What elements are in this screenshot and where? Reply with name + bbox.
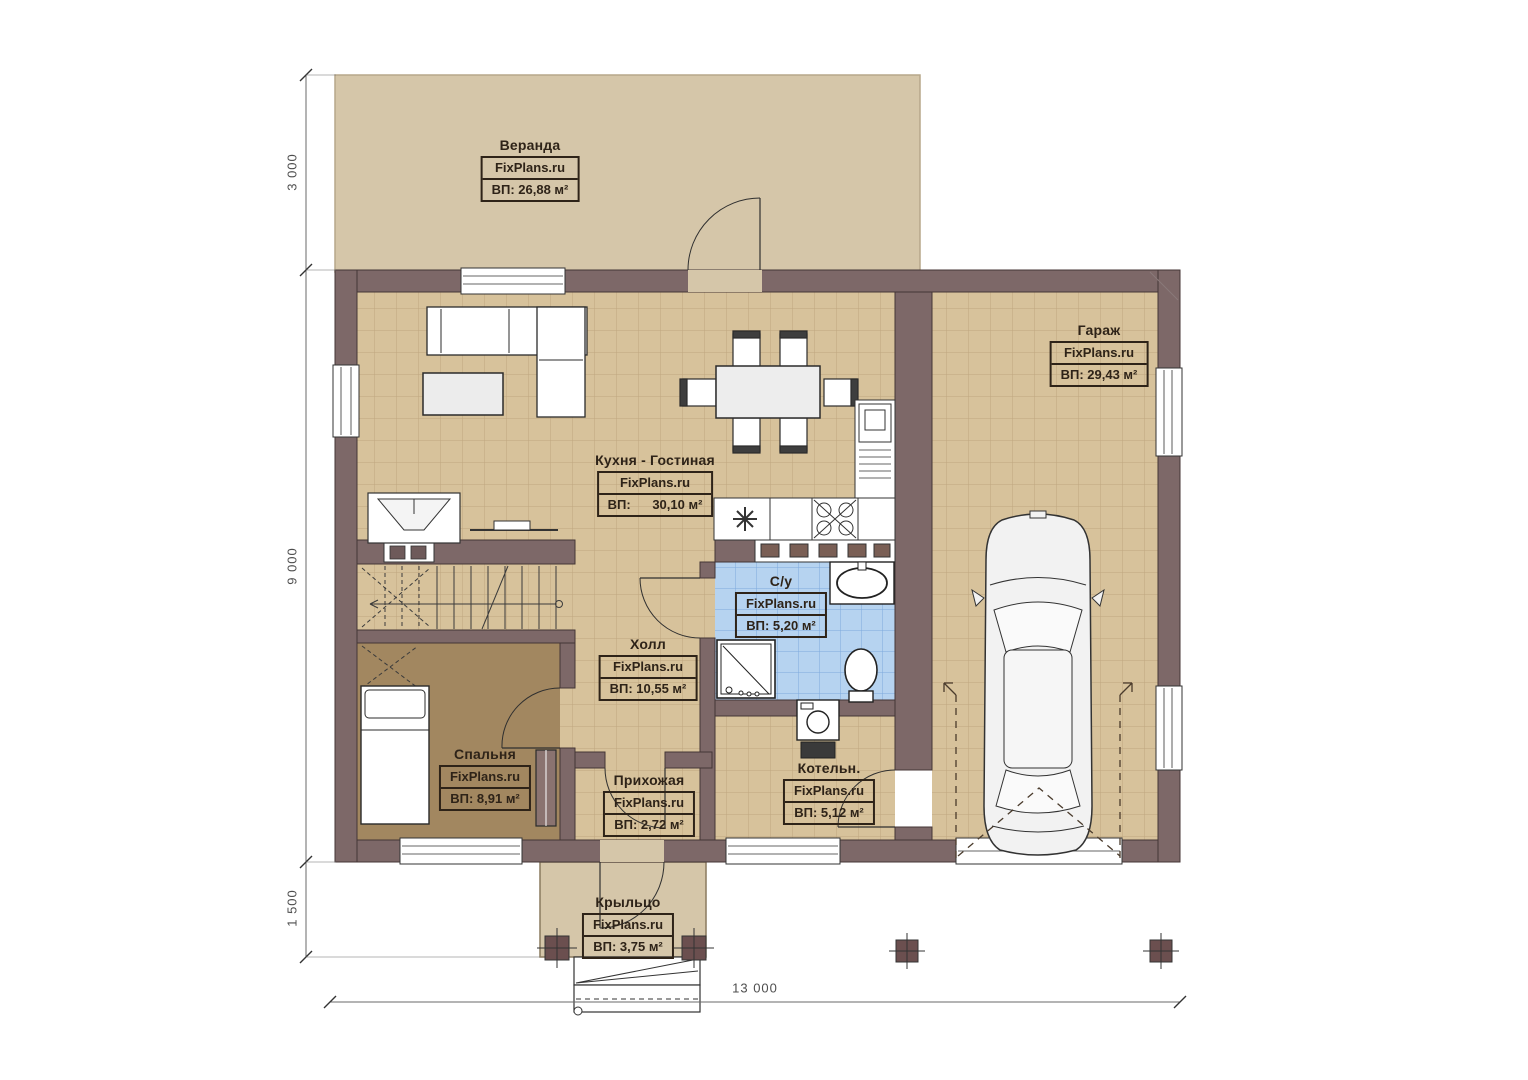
room-name: Гараж (1050, 322, 1149, 338)
brand-label: FixPlans.ru (441, 767, 529, 787)
window-garage-right-bottom (1156, 686, 1182, 770)
entrance-steps (574, 957, 700, 1015)
room-area: ВП: 26,88 м² (483, 178, 578, 200)
room-label-entry: Прихожая FixPlans.ru ВП: 2,72 м² (603, 772, 695, 837)
label-box: FixPlans.ru ВП: 3,75 м² (582, 913, 674, 959)
floor-plan-canvas: Веранда FixPlans.ru ВП: 26,88 м² Гараж F… (0, 0, 1528, 1080)
kitchen-cabinet-row (755, 540, 895, 562)
chimney-flue (384, 542, 434, 562)
label-box: FixPlans.ru ВП: 30,10 м² (597, 471, 714, 517)
label-box: FixPlans.ru ВП: 5,20 м² (735, 592, 827, 638)
yard-post (1143, 933, 1179, 969)
label-box: FixPlans.ru ВП: 29,43 м² (1050, 341, 1149, 387)
room-name: Прихожая (603, 772, 695, 788)
room-label-garage: Гараж FixPlans.ru ВП: 29,43 м² (1050, 322, 1149, 387)
room-name: С/у (735, 573, 827, 589)
veranda-area (335, 75, 920, 272)
room-label-boiler: Котельн. FixPlans.ru ВП: 5,12 м² (783, 760, 875, 825)
boiler-equipment (797, 700, 839, 758)
coffee-table (423, 373, 503, 415)
room-area: ВП: 5,20 м² (737, 614, 825, 636)
sink-basin-icon (830, 562, 894, 604)
brand-label: FixPlans.ru (601, 657, 696, 677)
window-garage-right-top (1156, 368, 1182, 456)
dimension-left-bottom: 1 500 (285, 889, 300, 927)
room-area: ВП: 8,91 м² (441, 787, 529, 809)
room-label-porch: Крыльцо FixPlans.ru ВП: 3,75 м² (582, 894, 674, 959)
window-living-top (461, 268, 565, 294)
brand-label: FixPlans.ru (605, 793, 693, 813)
brand-label: FixPlans.ru (599, 473, 712, 493)
porch-door-opening (600, 840, 664, 862)
room-area: ВП: 3,75 м² (584, 935, 672, 957)
room-area: ВП: 29,43 м² (1052, 363, 1147, 385)
room-area: ВП: 10,55 м² (601, 677, 696, 699)
shower-icon (717, 640, 775, 698)
label-box: FixPlans.ru ВП: 8,91 м² (439, 765, 531, 811)
label-box: FixPlans.ru ВП: 26,88 м² (481, 156, 580, 202)
brand-label: FixPlans.ru (483, 158, 578, 178)
label-box: FixPlans.ru ВП: 5,12 м² (783, 779, 875, 825)
toilet-icon (845, 649, 877, 702)
boiler-unit (801, 742, 835, 758)
room-name: Веранда (481, 137, 580, 153)
dimension-bottom-width: 13 000 (732, 981, 778, 996)
room-name: Крыльцо (582, 894, 674, 910)
brand-label: FixPlans.ru (1052, 343, 1147, 363)
dining-table (716, 366, 820, 418)
room-label-veranda: Веранда FixPlans.ru ВП: 26,88 м² (481, 137, 580, 202)
room-name: Холл (599, 636, 698, 652)
wardrobe (536, 750, 556, 826)
room-name: Кухня - Гостиная (595, 452, 715, 468)
fridge (855, 400, 895, 498)
veranda-door-opening (688, 270, 762, 292)
car (972, 511, 1104, 855)
window-living-left (333, 365, 359, 437)
room-area: ВП: 5,12 м² (785, 801, 873, 823)
fireplace (368, 493, 460, 543)
washing-machine-icon (797, 700, 839, 740)
window-bedroom (400, 838, 522, 864)
floor-plan-drawing (0, 0, 1528, 1080)
room-label-hall: Холл FixPlans.ru ВП: 10,55 м² (599, 636, 698, 701)
window-boiler (726, 838, 840, 864)
room-name: Котельн. (783, 760, 875, 776)
room-label-bedroom: Спальня FixPlans.ru ВП: 8,91 м² (439, 746, 531, 811)
brand-label: FixPlans.ru (785, 781, 873, 801)
label-box: FixPlans.ru ВП: 2,72 м² (603, 791, 695, 837)
room-name: Спальня (439, 746, 531, 762)
brand-label: FixPlans.ru (584, 915, 672, 935)
label-box: FixPlans.ru ВП: 10,55 м² (599, 655, 698, 701)
room-area: ВП: 2,72 м² (605, 813, 693, 835)
room-label-bathroom: С/у FixPlans.ru ВП: 5,20 м² (735, 573, 827, 638)
room-area: ВП: 30,10 м² (599, 493, 712, 515)
bed (361, 686, 429, 824)
room-label-kitchen-living: Кухня - Гостиная FixPlans.ru ВП: 30,10 м… (595, 452, 715, 517)
brand-label: FixPlans.ru (737, 594, 825, 614)
yard-post (889, 933, 925, 969)
dimension-left-middle: 9 000 (285, 547, 300, 585)
dimension-left-top: 3 000 (285, 153, 300, 191)
